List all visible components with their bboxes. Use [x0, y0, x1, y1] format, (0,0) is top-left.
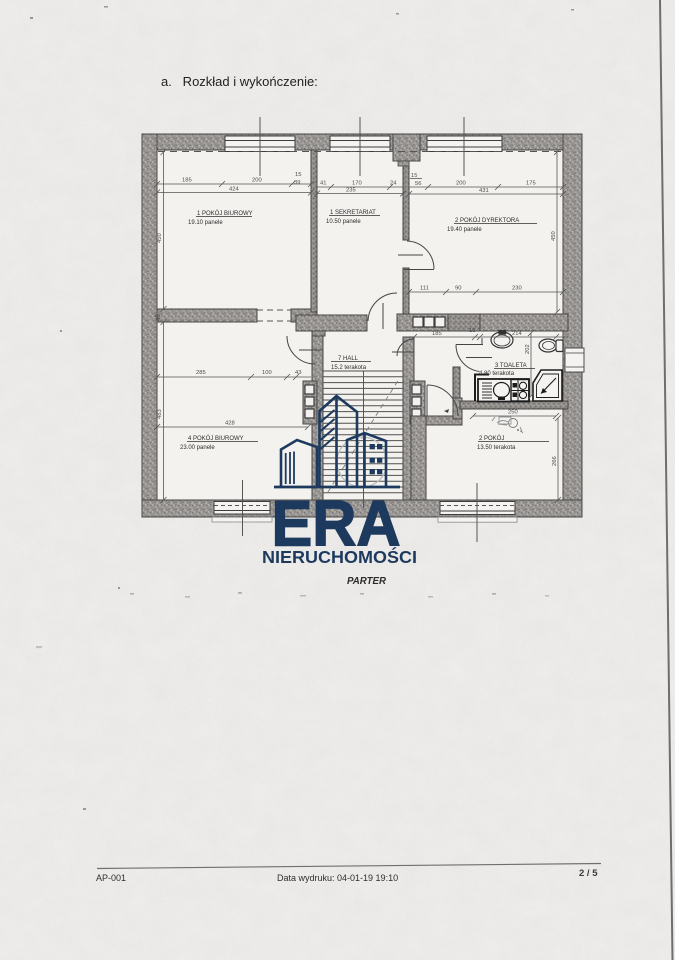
svg-text:56: 56	[415, 181, 421, 187]
svg-text:15.2 terakota: 15.2 terakota	[331, 365, 367, 371]
svg-text:AP-001: AP-001	[96, 873, 126, 883]
svg-text:111: 111	[420, 286, 429, 292]
svg-text:230: 230	[512, 286, 522, 292]
svg-text:NIERUCHOMOŚCI: NIERUCHOMOŚCI	[262, 546, 417, 567]
svg-text:424: 424	[229, 187, 239, 193]
svg-text:431: 431	[479, 188, 489, 194]
svg-text:185: 185	[432, 331, 442, 337]
svg-text:19.10 panele: 19.10 panele	[188, 220, 223, 226]
svg-text:PARTER: PARTER	[347, 575, 386, 587]
svg-text:428: 428	[225, 421, 235, 427]
svg-text:90: 90	[455, 286, 461, 292]
svg-text:170: 170	[352, 181, 362, 187]
svg-text:2 POKÓJ: 2 POKÓJ	[479, 435, 504, 442]
svg-text:23.00 panele: 23.00 panele	[180, 445, 215, 451]
svg-text:43: 43	[295, 370, 301, 376]
svg-text:200: 200	[456, 181, 466, 187]
svg-text:266: 266	[552, 456, 558, 466]
svg-text:250: 250	[508, 410, 518, 416]
svg-text:450: 450	[551, 231, 557, 241]
svg-text:214: 214	[512, 331, 522, 337]
svg-text:285: 285	[196, 370, 206, 376]
svg-text:24: 24	[390, 181, 397, 187]
svg-text:2 POKÓJ DYREKTORA: 2 POKÓJ DYREKTORA	[455, 217, 519, 224]
svg-text:19.40 panele: 19.40 panele	[447, 227, 482, 233]
svg-text:1 POKÓJ BIUROWY: 1 POKÓJ BIUROWY	[197, 210, 253, 217]
svg-text:45: 45	[156, 314, 162, 321]
svg-text:202: 202	[525, 344, 531, 354]
svg-text:4 POKÓJ BIUROWY: 4 POKÓJ BIUROWY	[188, 435, 244, 442]
svg-text:4.80 terakota: 4.80 terakota	[479, 371, 515, 377]
svg-text:Data wydruku: 04-01-19 19:10: Data wydruku: 04-01-19 19:10	[277, 873, 398, 883]
svg-text:100: 100	[262, 370, 272, 376]
svg-text:41: 41	[320, 181, 326, 187]
svg-text:175: 175	[526, 181, 536, 187]
svg-text:235: 235	[346, 188, 356, 194]
svg-text:1 SEKRETARIAT: 1 SEKRETARIAT	[330, 210, 376, 216]
svg-text:3 TOALETA: 3 TOALETA	[495, 363, 527, 369]
svg-text:185: 185	[182, 178, 192, 184]
svg-text:10.50 panele: 10.50 panele	[326, 219, 361, 225]
svg-text:7 HALL: 7 HALL	[338, 356, 359, 362]
svg-text:483: 483	[157, 409, 163, 419]
svg-text:2 / 5: 2 / 5	[579, 868, 598, 879]
svg-text:450: 450	[157, 233, 163, 243]
svg-text:15: 15	[469, 328, 475, 334]
svg-text:13.50 terakota: 13.50 terakota	[477, 445, 516, 451]
svg-text:39: 39	[294, 180, 300, 186]
svg-text:15: 15	[295, 172, 301, 178]
svg-text:a. Rozkład i wykończenie:: a. Rozkład i wykończenie:	[161, 74, 318, 89]
svg-text:200: 200	[252, 178, 262, 184]
